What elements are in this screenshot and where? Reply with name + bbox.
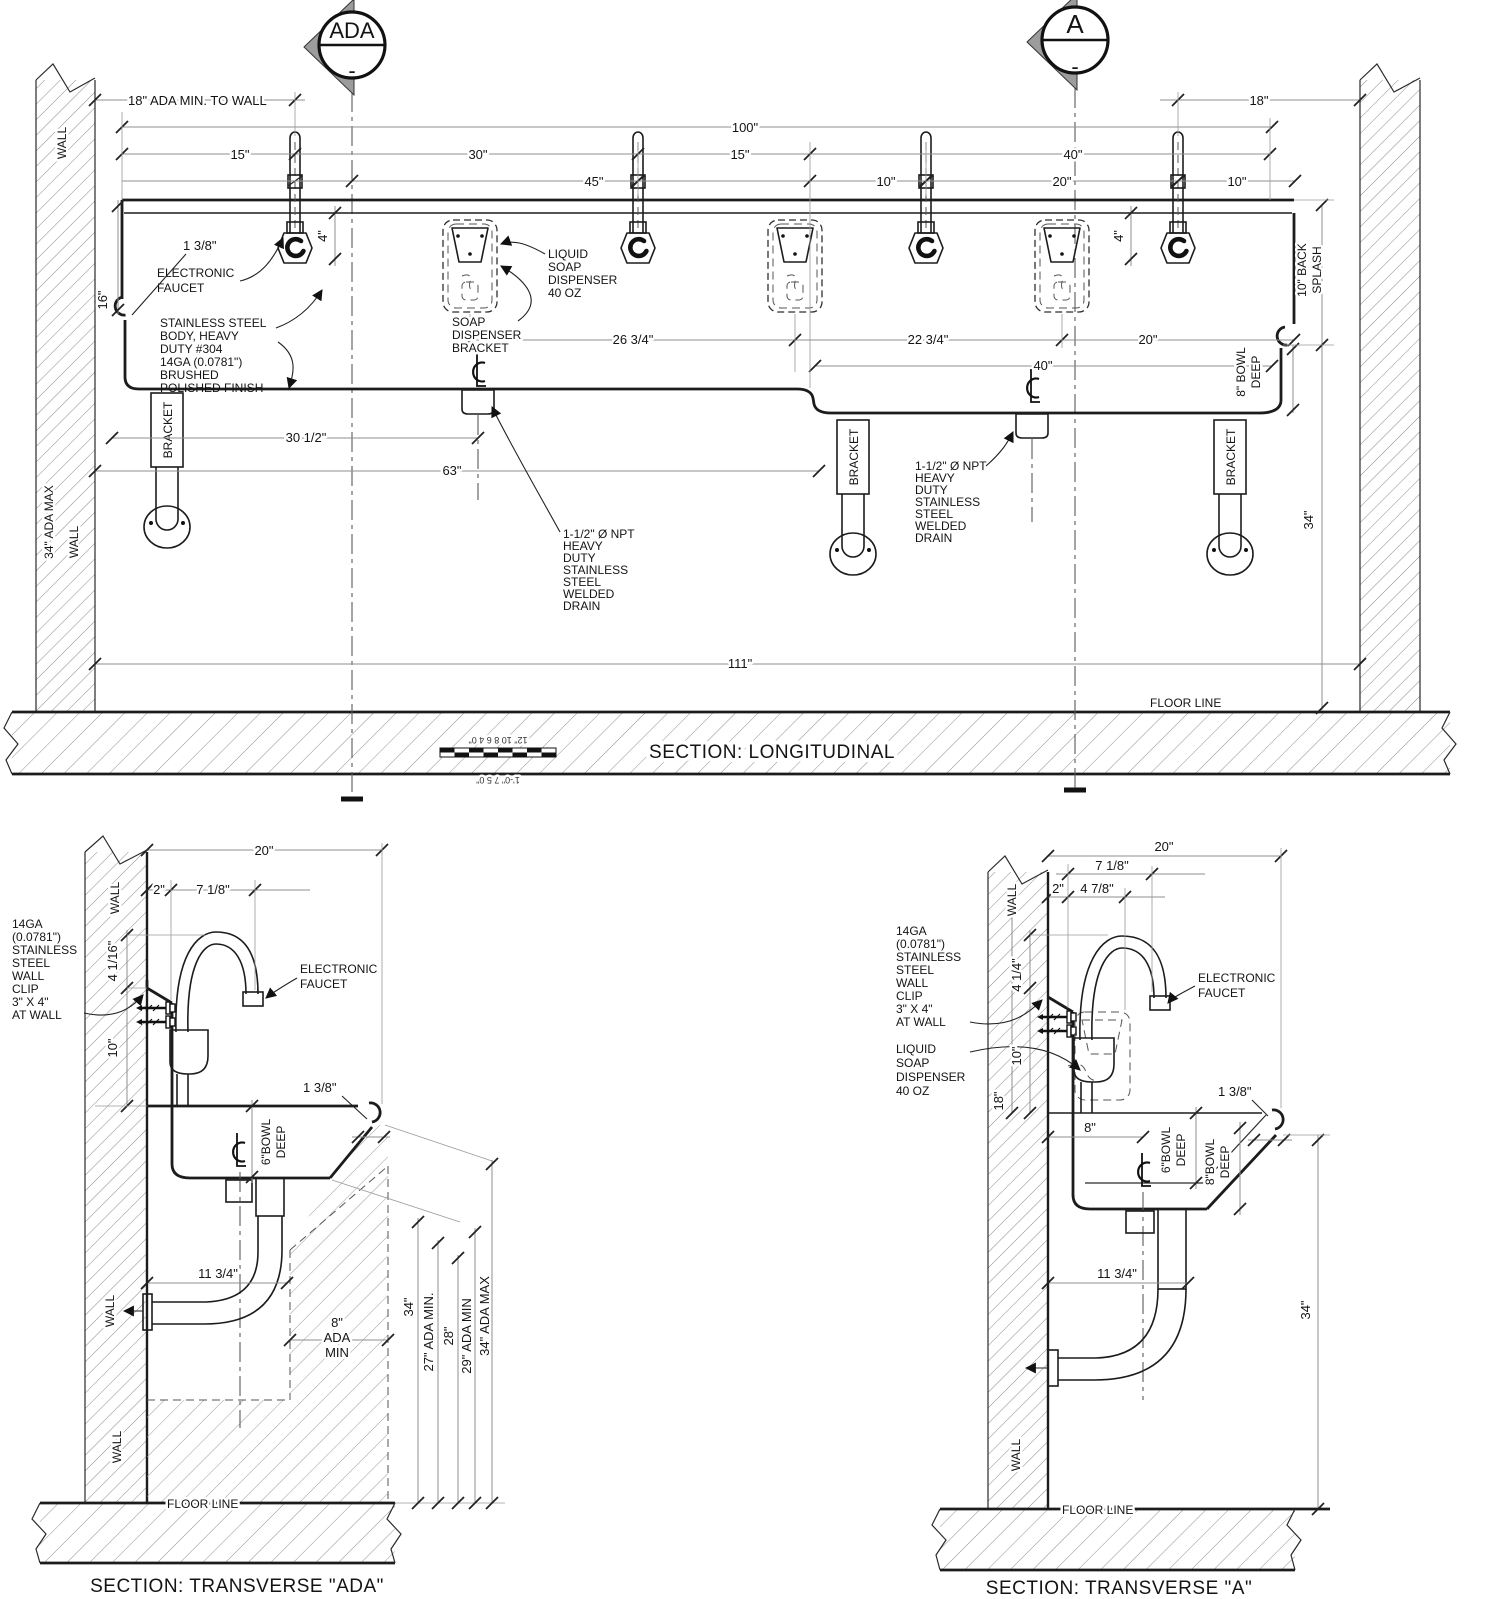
a-dim-8: 8" xyxy=(1084,1120,1096,1135)
ada-dim-v29: 29" ADA MIN xyxy=(459,1298,474,1373)
wall-label-bottom-left: WALL xyxy=(67,526,81,559)
body-spec-label: STAINLESS STEEL BODY, HEAVY DUTY #304 14… xyxy=(160,290,322,395)
dim-40b: 40" xyxy=(1033,358,1052,373)
svg-text:14GA (0.0781"): 14GA (0.0781") xyxy=(160,355,242,369)
svg-text:40 OZ: 40 OZ xyxy=(896,1084,929,1098)
ada-dim-v28: 28" xyxy=(441,1326,456,1345)
svg-text:BODY, HEAVY: BODY, HEAVY xyxy=(160,329,239,343)
a-bowl8-label-2: DEEP xyxy=(1218,1146,1232,1179)
scale-bottom: 1'-0" 7 5 0" xyxy=(476,775,520,785)
a-soap-dispenser xyxy=(1068,1012,1130,1100)
dim-63: 63" xyxy=(442,463,461,478)
dim-15b: 15" xyxy=(730,147,749,162)
svg-text:DUTY #304: DUTY #304 xyxy=(160,342,223,356)
ada-dim-v34: 34" xyxy=(401,1297,416,1316)
svg-text:SOAP: SOAP xyxy=(452,315,485,329)
ada-bowl6-label-1: 6"BOWL xyxy=(259,1119,273,1166)
a-floor xyxy=(932,1509,1330,1570)
ada-electronic-faucet-label: ELECTRONIC FAUCET xyxy=(266,962,378,998)
a-dim-10: 10" xyxy=(1009,1046,1024,1065)
drain-label-left: 1-1/2" Ø NPT HEAVY DUTY STAINLESS STEEL … xyxy=(492,407,635,613)
ada-wall-label-1: WALL xyxy=(108,882,122,915)
support-legs: BRACKET BRACKET BRACKET xyxy=(144,393,1253,575)
dim-18: 18" xyxy=(1249,93,1268,108)
svg-text:DRAIN: DRAIN xyxy=(563,599,600,613)
a-dim-20: 20" xyxy=(1154,839,1173,854)
svg-text:ELECTRONIC: ELECTRONIC xyxy=(300,962,378,976)
wall-label-top-left: WALL xyxy=(55,127,69,160)
svg-text:CLIP: CLIP xyxy=(12,982,39,996)
svg-text:3" X 4": 3" X 4" xyxy=(896,1002,933,1016)
svg-text:FAUCET: FAUCET xyxy=(157,281,205,295)
svg-text:DISPENSER: DISPENSER xyxy=(548,273,618,287)
bracket-label-2: BRACKET xyxy=(847,428,861,485)
svg-text:14GA: 14GA xyxy=(896,924,927,938)
svg-text:STAINLESS STEEL: STAINLESS STEEL xyxy=(160,316,267,330)
ada-dim-2: 2" xyxy=(153,882,165,897)
a-dim-4-1-4: 4 1/4" xyxy=(1009,958,1024,992)
dim-4b: 4" xyxy=(1111,230,1126,242)
right-wall xyxy=(1360,64,1420,712)
scale-top: 12" 10 8 6 4 0" xyxy=(469,735,528,745)
ada-dim-8-min-2: ADA xyxy=(324,1330,351,1345)
svg-text:DRAIN: DRAIN xyxy=(915,531,952,545)
a-electronic-faucet-label: ELECTRONIC FAUCET xyxy=(1168,971,1276,1003)
ada-dim-1-3-8: 1 3/8" xyxy=(303,1080,337,1095)
bracket-label-1: BRACKET xyxy=(161,401,175,458)
svg-text:SOAP: SOAP xyxy=(896,1056,929,1070)
faucet-1 xyxy=(278,132,312,263)
ada-wall-label-2: WALL xyxy=(103,1295,117,1328)
ada-bowl6-label-2: DEEP xyxy=(274,1126,288,1159)
a-bowl6-label-2: DEEP xyxy=(1174,1134,1188,1167)
dim-34-right: 34" xyxy=(1301,510,1316,529)
dim-20b: 20" xyxy=(1138,332,1157,347)
ada-floor xyxy=(32,1503,505,1563)
dimensions-longitudinal xyxy=(89,92,1366,714)
dim-30: 30" xyxy=(468,147,487,162)
svg-text:DISPENSER: DISPENSER xyxy=(896,1070,966,1084)
bowl-deep-label-2: DEEP xyxy=(1249,356,1263,389)
left-wall xyxy=(36,64,95,712)
svg-text:POLISHED FINISH: POLISHED FINISH xyxy=(160,381,263,395)
soap-dispenser-2 xyxy=(768,220,822,312)
longitudinal-title: SECTION: LONGITUDINAL xyxy=(649,742,895,763)
soap-dispenser-3 xyxy=(1035,220,1089,312)
dim-26-3-4: 26 3/4" xyxy=(613,332,654,347)
svg-text:LIQUID: LIQUID xyxy=(548,247,588,261)
ada-dim-7-1-8: 7 1/8" xyxy=(196,882,230,897)
svg-text:ELECTRONIC: ELECTRONIC xyxy=(1198,971,1276,985)
svg-text:(0.0781"): (0.0781") xyxy=(12,930,61,944)
floor-line-label-long: FLOOR LINE xyxy=(1150,696,1221,710)
svg-text:SOAP: SOAP xyxy=(548,260,581,274)
soap-dispenser-1 xyxy=(443,220,497,312)
svg-text:STAINLESS: STAINLESS xyxy=(12,943,77,957)
marker-ada-label: ADA xyxy=(329,18,375,43)
a-faucet xyxy=(1074,936,1170,1113)
svg-text:STEEL: STEEL xyxy=(12,956,50,970)
a-floor-line-label: FLOOR LINE xyxy=(1062,1503,1133,1517)
transverse-ada-section: 20" 2" 7 1/8" 4 1/16" 10" 14GA (0.0781")… xyxy=(12,836,505,1597)
svg-text:3" X 4": 3" X 4" xyxy=(12,995,49,1009)
svg-text:AT WALL: AT WALL xyxy=(12,1008,62,1022)
svg-text:(0.0781"): (0.0781") xyxy=(896,937,945,951)
drawing-svg: ADA - A - BRACKET BRACKET xyxy=(0,0,1489,1599)
dim-10a: 10" xyxy=(876,174,895,189)
marker-a-label: A xyxy=(1066,9,1084,39)
svg-text:14GA: 14GA xyxy=(12,917,43,931)
ada-floor-line-label: FLOOR LINE xyxy=(167,1497,238,1511)
a-wall xyxy=(988,856,1048,1509)
a-dimensions xyxy=(1006,848,1330,1515)
a-dim-34: 34" xyxy=(1298,1300,1313,1319)
ada-dim-20: 20" xyxy=(254,843,273,858)
dim-45: 45" xyxy=(584,174,603,189)
svg-text:FAUCET: FAUCET xyxy=(300,977,348,991)
marker-ada-sub: - xyxy=(348,58,355,83)
svg-text:FAUCET: FAUCET xyxy=(1198,986,1246,1000)
a-title: SECTION: TRANSVERSE "A" xyxy=(986,1578,1252,1599)
backsplash-label-1: 10" BACK xyxy=(1295,243,1309,297)
dim-100: 100" xyxy=(732,120,759,135)
a-dim-2: 2" xyxy=(1052,881,1064,896)
dim-15a: 15" xyxy=(230,147,249,162)
drain-label-right: 1-1/2" Ø NPT HEAVY DUTY STAINLESS STEEL … xyxy=(915,432,1013,545)
svg-text:WALL: WALL xyxy=(12,969,45,983)
a-wall-label-2: WALL xyxy=(1009,1439,1023,1472)
blueprint-canvas: ADA - A - BRACKET BRACKET xyxy=(0,0,1489,1599)
faucet-4 xyxy=(1161,132,1195,263)
ada-dim-8-min-1: 8" xyxy=(331,1315,343,1330)
a-wall-label-1: WALL xyxy=(1005,884,1019,917)
a-sink-profile xyxy=(1048,997,1283,1209)
ada-dim-11-3-4: 11 3/4" xyxy=(198,1266,238,1281)
svg-text:40 OZ: 40 OZ xyxy=(548,286,581,300)
a-dim-1-3-8: 1 3/8" xyxy=(1218,1084,1252,1099)
ada-faucet xyxy=(170,932,263,1106)
a-dim-7-1-8: 7 1/8" xyxy=(1095,858,1129,873)
dim-34-ada-max-left: 34" ADA MAX xyxy=(42,485,56,559)
svg-text:AT WALL: AT WALL xyxy=(896,1015,946,1029)
section-marker-ada: ADA - xyxy=(304,0,385,95)
a-dim-11-3-4: 11 3/4" xyxy=(1097,1266,1137,1281)
electronic-faucet-label: ELECTRONIC FAUCET xyxy=(157,238,283,295)
dim-ada-min-to-wall: 18" ADA MIN. TO WALL xyxy=(128,93,267,108)
svg-text:DISPENSER: DISPENSER xyxy=(452,328,522,342)
ada-title: SECTION: TRANSVERSE "ADA" xyxy=(90,1576,384,1597)
svg-text:BRACKET: BRACKET xyxy=(452,341,509,355)
dim-10b: 10" xyxy=(1227,174,1246,189)
longitudinal-section: ADA - A - BRACKET BRACKET xyxy=(4,0,1456,799)
dim-22-3-4: 22 3/4" xyxy=(908,332,949,347)
a-dim-18: 18" xyxy=(991,1091,1006,1110)
dim-30-1-2: 30 1/2" xyxy=(286,430,327,445)
ada-wall-label-3: WALL xyxy=(110,1431,124,1464)
svg-text:CLIP: CLIP xyxy=(896,989,923,1003)
marker-a-sub: - xyxy=(1071,54,1078,79)
ada-dim-v27: 27" ADA MIN. xyxy=(421,1292,436,1371)
ada-dim-10: 10" xyxy=(105,1038,120,1057)
dim-40a: 40" xyxy=(1063,147,1082,162)
transverse-a-section: 20" 7 1/8" 2" 4 7/8" 14GA (0.0781") STAI… xyxy=(896,839,1330,1599)
ada-dim-8-min-3: MIN xyxy=(325,1345,349,1360)
dim-20a: 20" xyxy=(1052,174,1071,189)
dim-4a: 4" xyxy=(315,230,330,242)
svg-text:WALL: WALL xyxy=(896,976,929,990)
ada-leader-1-3-8 xyxy=(342,1096,367,1119)
drain-2 xyxy=(1016,369,1048,522)
a-dim-4-7-8: 4 7/8" xyxy=(1080,881,1114,896)
liquid-soap-label: LIQUID SOAP DISPENSER 40 OZ xyxy=(501,242,618,300)
bowl-deep-label-1: 8" BOWL xyxy=(1234,347,1248,397)
backsplash-label-2: SPLASH xyxy=(1310,246,1324,293)
a-bowl8-label-1: 8"BOWL xyxy=(1203,1139,1217,1186)
ada-wall xyxy=(85,836,147,1503)
drain-1 xyxy=(462,353,494,500)
svg-text:BRUSHED: BRUSHED xyxy=(160,368,219,382)
a-bowl6-label-1: 6"BOWL xyxy=(1159,1127,1173,1174)
svg-text:STEEL: STEEL xyxy=(896,963,934,977)
svg-text:STAINLESS: STAINLESS xyxy=(896,950,961,964)
bracket-label-3: BRACKET xyxy=(1224,428,1238,485)
ada-dim-4-1-16: 4 1/16" xyxy=(105,940,120,981)
section-marker-a: A - xyxy=(1027,0,1108,90)
ada-dim-v34max: 34" ADA MAX xyxy=(477,1276,492,1356)
dim-16: 16" xyxy=(95,290,110,309)
svg-text:LIQUID: LIQUID xyxy=(896,1042,936,1056)
dim-1-3-8: 1 3/8" xyxy=(183,238,217,253)
dim-111: 111" xyxy=(728,656,753,671)
